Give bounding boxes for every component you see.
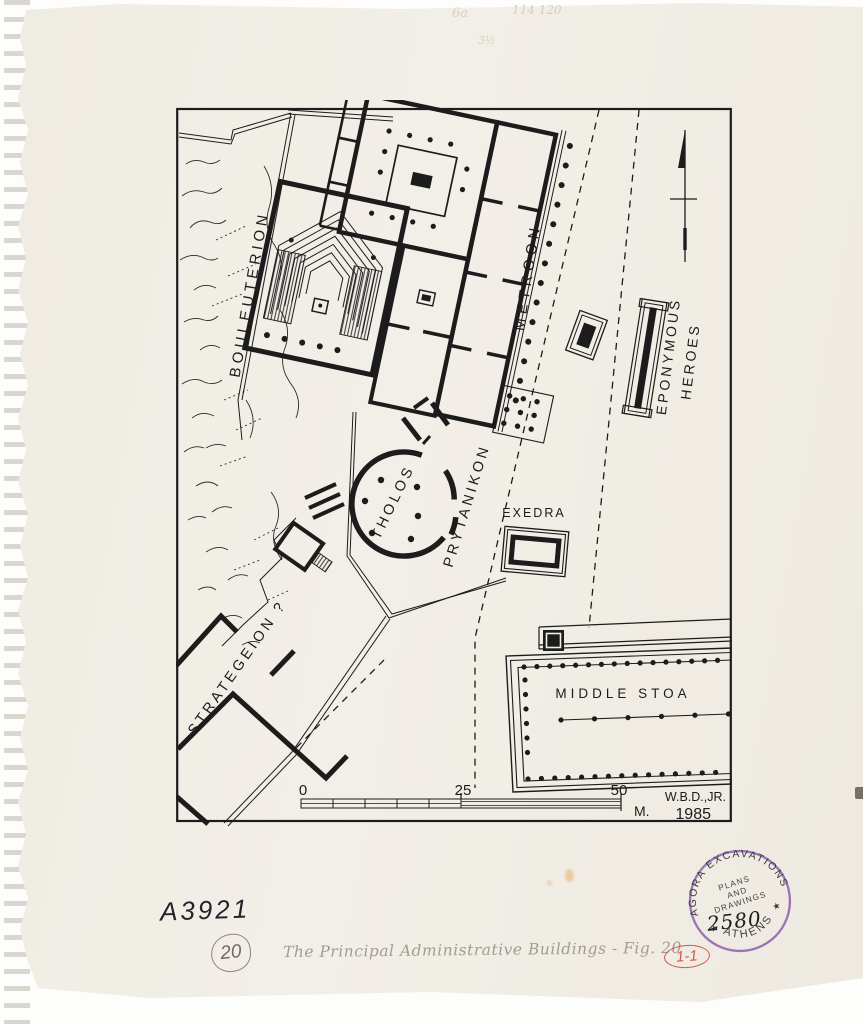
small-building: [275, 523, 338, 580]
middle-stoa: [506, 619, 732, 792]
label-middle-stoa: MIDDLE STOA: [555, 686, 690, 701]
scale-tick-50: 50: [611, 782, 628, 799]
edge-notch: [855, 787, 863, 799]
north-arrow-icon: [670, 130, 697, 262]
terrain-contours: [180, 160, 299, 645]
label-metroon: METROON: [511, 223, 545, 332]
scale-tick-0: 0: [299, 782, 307, 799]
paper-stain-small: [547, 880, 552, 886]
tholos-porch: [403, 398, 448, 444]
exedra-monument: [501, 526, 569, 576]
scale-unit: M.: [634, 803, 650, 819]
steps: [305, 484, 344, 518]
faint-pencil-note-1: 6a: [452, 6, 468, 21]
label-tholos: THOLOS: [369, 463, 419, 542]
label-prytanikon: PRYTANIKON: [441, 442, 494, 569]
drawing-author: W.B.D.,JR.: [665, 790, 726, 804]
administrative-complex: [238, 100, 608, 443]
label-strategeion: STRATEGEION ?: [185, 597, 290, 738]
label-eponymous-line2: HEROES: [677, 322, 702, 401]
label-exedra: EXEDRA: [502, 506, 565, 520]
paper-stain: [565, 869, 574, 882]
excavation-stamp: AGORA EXCAVATIONS ATHENS ★ ★ PLANS AND D…: [683, 844, 797, 958]
circled-figure-number-text: 20: [219, 941, 242, 965]
scanned-sheet: 6a 114 120 3½: [0, 0, 863, 1024]
site-plan: BOULEUTERION METROON EPONYMOUS HEROES TH…: [176, 100, 732, 831]
faint-pencil-note-2: 114 120: [512, 3, 562, 17]
inventory-number: A3921: [159, 893, 250, 927]
faint-pencil-note-3: 3½: [478, 34, 496, 47]
stamp-star-right-icon: ★: [771, 900, 782, 912]
small-monument: [566, 310, 608, 359]
scale-tick-25: 25: [455, 782, 472, 799]
boundary-walls: [179, 110, 393, 646]
